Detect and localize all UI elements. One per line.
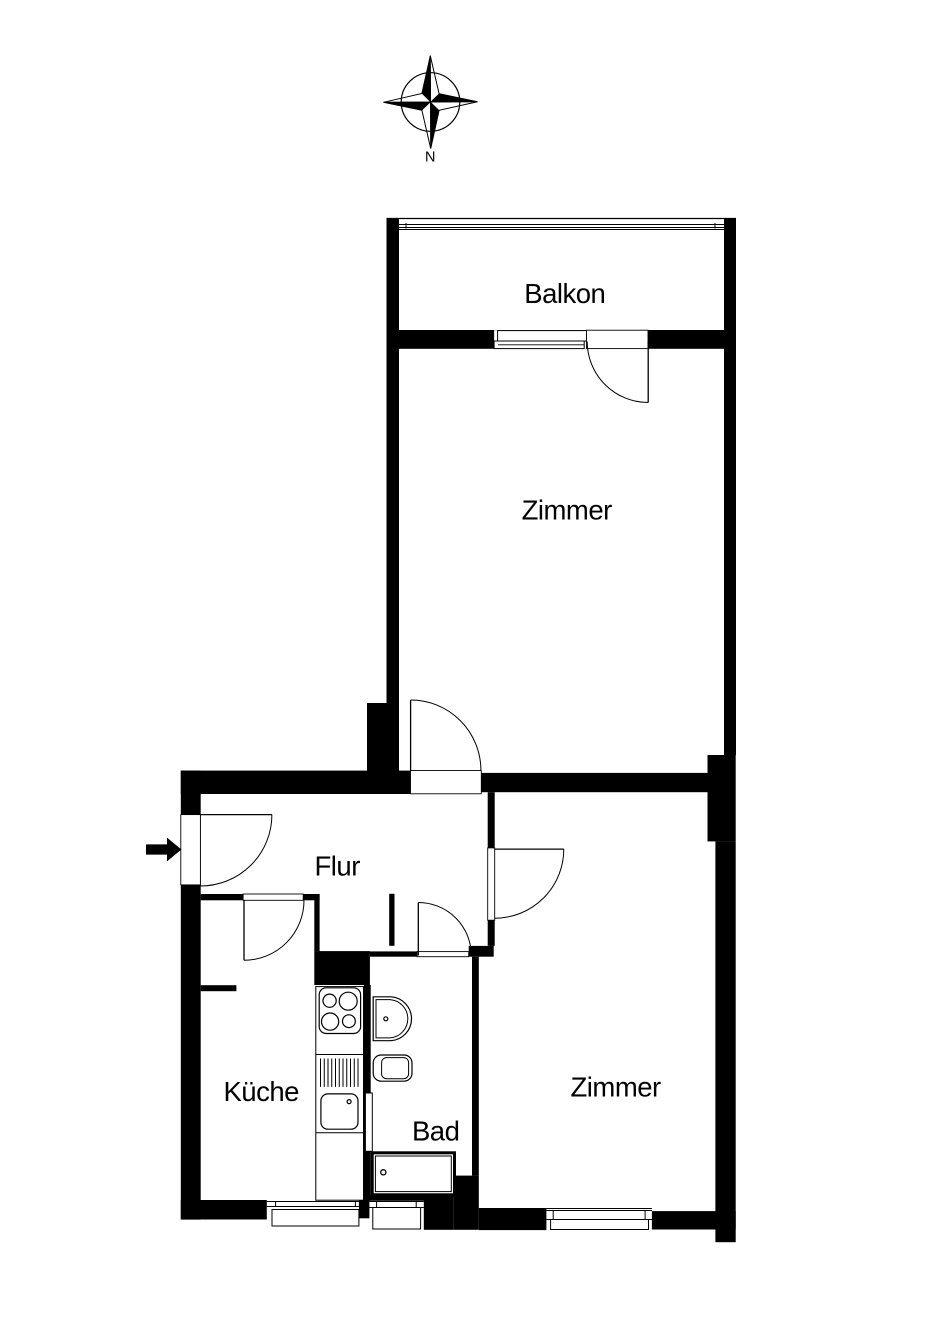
- svg-text:Flur: Flur: [315, 851, 361, 882]
- svg-text:Balkon: Balkon: [524, 278, 605, 309]
- svg-text:Zimmer: Zimmer: [571, 1072, 662, 1103]
- svg-text:N: N: [425, 150, 435, 166]
- svg-text:Bad: Bad: [412, 1115, 459, 1146]
- svg-text:Küche: Küche: [223, 1076, 299, 1107]
- svg-text:Zimmer: Zimmer: [522, 495, 613, 526]
